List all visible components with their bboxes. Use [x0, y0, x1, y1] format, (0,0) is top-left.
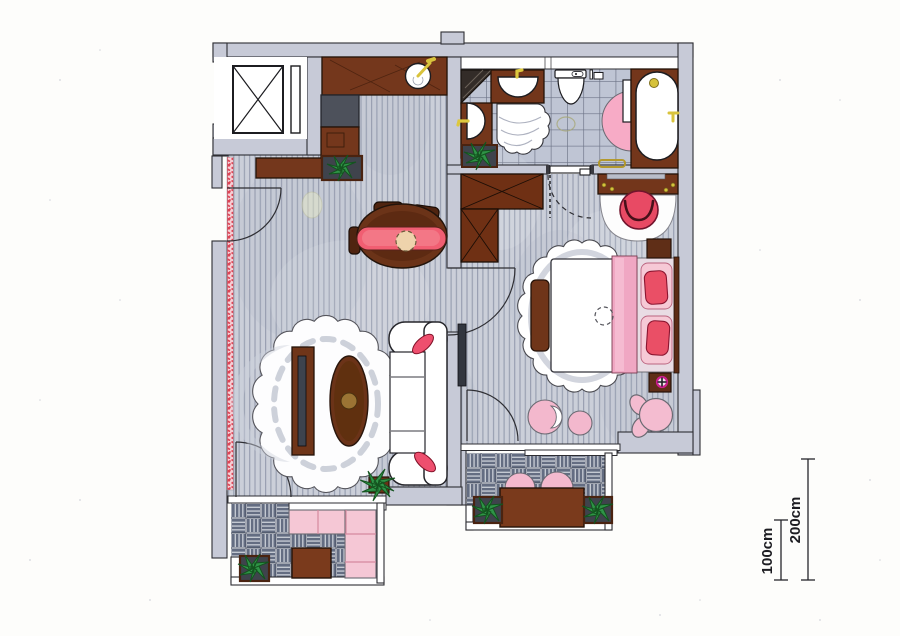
svg-text:200cm: 200cm [787, 497, 804, 544]
svg-text:100cm: 100cm [759, 528, 776, 575]
